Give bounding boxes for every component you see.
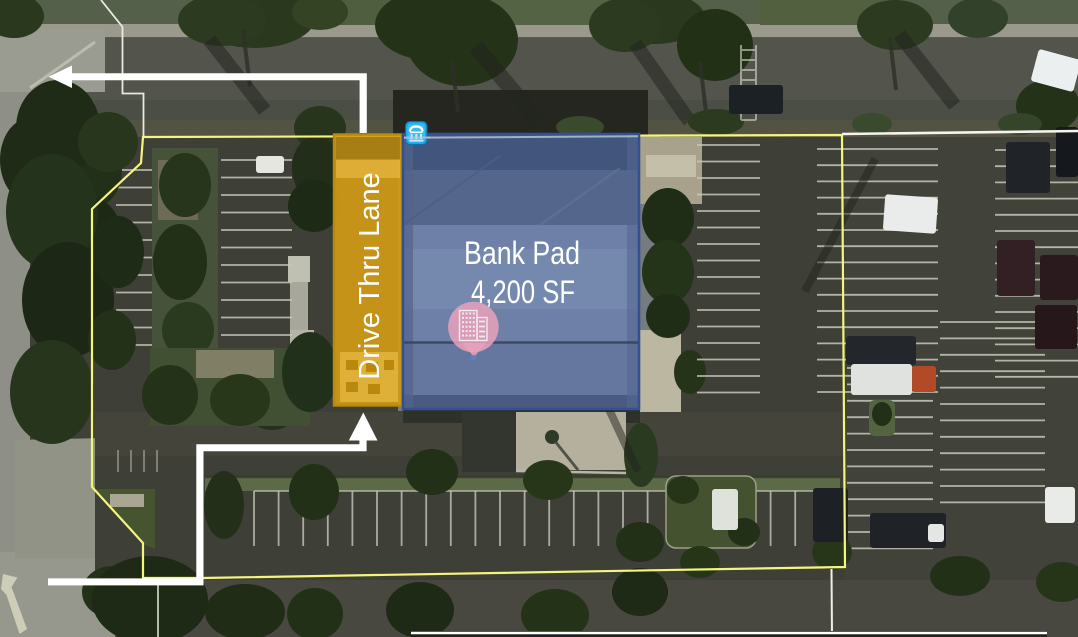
svg-text:Drive Thru Lane: Drive Thru Lane bbox=[354, 172, 386, 379]
svg-text:Bank Pad: Bank Pad bbox=[464, 235, 580, 271]
svg-text:4,200 SF: 4,200 SF bbox=[471, 274, 575, 310]
